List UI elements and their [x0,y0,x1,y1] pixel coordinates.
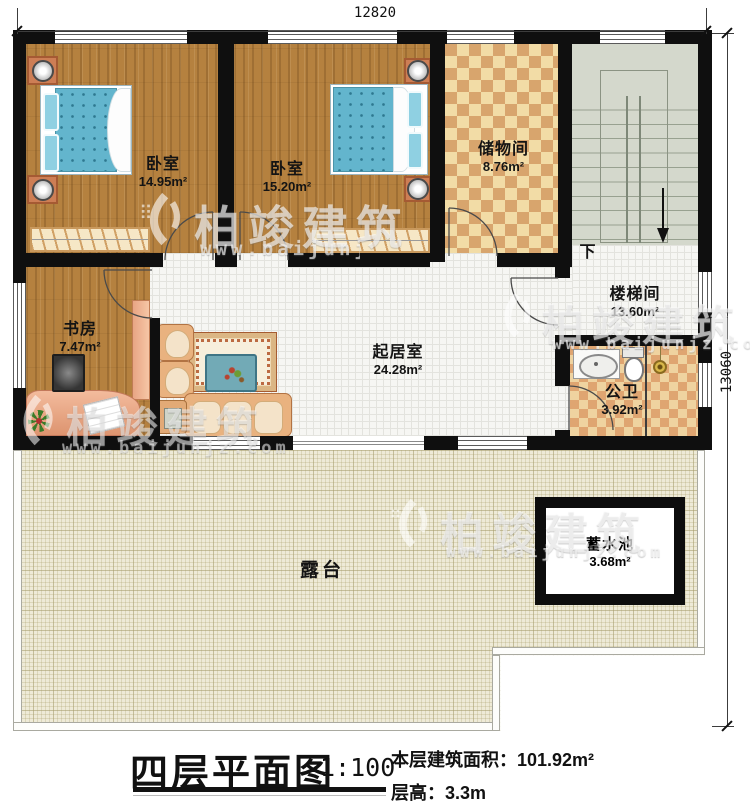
patio-door-opening [293,436,424,450]
sofa [184,393,292,437]
nightstand [27,56,58,85]
wardrobe-bedroom1 [30,227,150,252]
study-cabinet [132,300,150,400]
window-living-bottom-left [193,436,260,450]
lamp-icon [32,179,54,201]
toilet [622,347,644,379]
window-bedroom2-top [268,30,397,44]
study-label: 书房 7.47m² [40,320,120,355]
dimension-top-value: 12820 [330,5,420,21]
bathroom-label: 公卫 3.92m² [582,383,662,418]
wall-hall-left-c [555,430,570,436]
nightstand [404,58,431,84]
bed-2-pillow [407,91,423,128]
lamp-icon [407,60,429,82]
coffee-table [205,354,257,392]
armchair [156,324,194,361]
water-tank-area: 3.68m² [589,554,630,569]
lamp-icon [32,60,54,82]
window-bedroom1-top [55,30,187,44]
wall-bedrooms-divider [218,44,234,267]
window-storage-top [447,30,514,44]
floor-area-line: 本层建筑面积：101.92m² [391,746,594,772]
window-bathroom-right [698,363,712,407]
tv [52,354,85,392]
window-stairwell-right [698,272,712,312]
wall-bedroom2-storage [430,44,445,262]
bed-2-pillow [407,132,423,169]
wall-storage-stair [558,44,572,262]
dimension-right-value: 13060 [719,337,735,407]
sink-counter [573,349,620,379]
nightstand [27,175,58,204]
terrace-label: 露台 [282,560,362,583]
plant-center [36,418,42,424]
window-living-bottom-right [458,436,527,450]
wall-bathroom-top [570,335,698,346]
wall-mid-b [215,253,237,267]
window-study-left [13,283,26,388]
floor-area-label: 本层建筑面积： [391,750,517,770]
stair-rail [626,96,641,243]
wall-hall-left-a [555,262,570,278]
dimension-line-top [17,31,707,32]
window-stairwell-top [600,30,665,44]
end-table [156,400,187,434]
drawing-title: 四层平面图 [130,742,335,797]
water-tank-label: 蓄水池 [586,533,634,554]
floor-height-line: 层高：3.3m [391,779,486,802]
wall-mid-a [13,253,163,267]
living-room-label: 起居室 24.28m² [348,343,448,378]
bedroom1-label: 卧室 14.95m² [118,155,208,190]
floor-area-value: 101.92m² [517,750,594,770]
shower-head-icon [653,360,667,374]
bed-1-pillow [43,93,59,131]
floor-height-value: 3.3m [445,783,486,802]
floor-plan-canvas: 蓄水池 3.68m² 露台 [0,0,750,802]
lamp-icon [407,178,429,200]
nightstand [404,176,431,202]
floor-height-label: 层高： [391,783,445,802]
sink-basin [579,354,618,379]
stairwell-label: 楼梯间 13.60m² [590,285,680,320]
bedroom2-label: 卧室 15.20m² [242,160,332,195]
bed-1-pillow [43,134,59,172]
wall-study-right [150,318,160,436]
wardrobe-bedroom2 [310,228,430,253]
storage-label: 储物间 8.76m² [466,140,541,175]
wall-mid-c [288,253,430,267]
water-tank: 蓄水池 3.68m² [535,497,685,605]
stairs-down-label: 下 [576,243,600,262]
wall-hall-left-b [555,335,570,386]
drawing-scale: 1:100 [320,753,395,782]
